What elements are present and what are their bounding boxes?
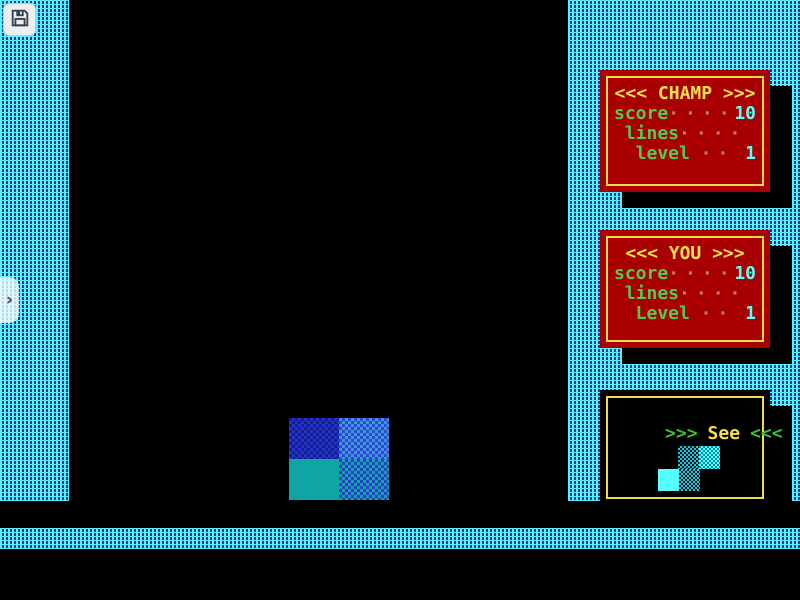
piece-block: [289, 459, 339, 500]
champ-lines-row: lines ·····: [600, 124, 770, 144]
lines-label: lines: [614, 124, 679, 144]
champ-title: <<< CHAMP >>>: [600, 84, 770, 104]
falling-piece: [289, 418, 389, 500]
arrows-left-icon: <<<: [750, 423, 783, 444]
chevron-right-icon: ›: [6, 290, 13, 310]
see-label: See: [708, 423, 741, 444]
you-score-row: score ····· 10: [600, 264, 770, 284]
champ-level-row: level ·· 1: [600, 144, 770, 164]
score-value: 10: [734, 264, 756, 284]
level-value: 1: [745, 304, 756, 324]
sidebar-expand-handle[interactable]: ›: [0, 277, 19, 323]
floppy-disk-icon: [9, 7, 31, 33]
frame-band-bottom: [0, 528, 800, 549]
dots: ·····: [679, 284, 746, 304]
score-label: score: [614, 104, 668, 124]
game-screen: <<< CHAMP >>> score ····· 10 lines ·····…: [0, 0, 800, 600]
score-label: score: [614, 264, 668, 284]
preview-block: [679, 469, 700, 491]
level-value: 1: [745, 144, 756, 164]
champ-panel: <<< CHAMP >>> score ····· 10 lines ·····…: [600, 70, 770, 192]
preview-block: [678, 446, 699, 469]
arrows-right-icon: >>>: [665, 423, 698, 444]
dots: ··: [690, 144, 745, 164]
level-label: Level: [614, 304, 690, 324]
dots: ·····: [668, 264, 734, 284]
next-piece-panel: >>>See<<<: [600, 390, 770, 505]
you-level-row: Level ·· 1: [600, 304, 770, 324]
save-button[interactable]: [3, 3, 36, 36]
level-label: level: [614, 144, 690, 164]
piece-block: [339, 459, 389, 500]
dots: ··: [690, 304, 745, 324]
piece-block: [289, 418, 339, 459]
playfield: [69, 48, 568, 528]
dots: ·····: [679, 124, 746, 144]
champ-score-row: score ····· 10: [600, 104, 770, 124]
you-panel: <<< YOU >>> score ····· 10 lines ····· L…: [600, 230, 770, 348]
preview-block: [658, 469, 679, 491]
frame-band-left: [0, 0, 69, 501]
you-lines-row: lines ·····: [600, 284, 770, 304]
score-value: 10: [734, 104, 756, 124]
piece-block: [339, 418, 389, 459]
dots: ·····: [668, 104, 734, 124]
lines-label: lines: [614, 284, 679, 304]
preview-block: [699, 446, 720, 469]
you-title: <<< YOU >>>: [600, 244, 770, 264]
